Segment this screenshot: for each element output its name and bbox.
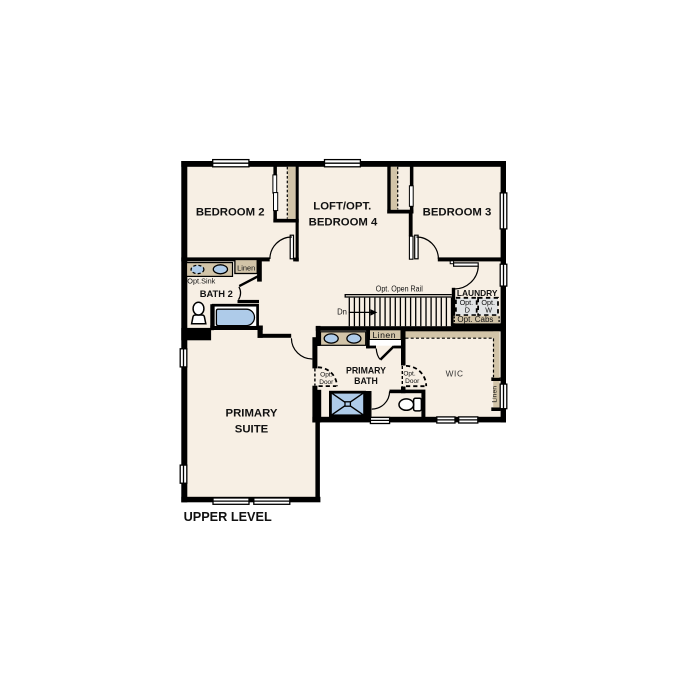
svg-text:LAUNDRY: LAUNDRY — [457, 288, 498, 298]
svg-text:UPPER LEVEL: UPPER LEVEL — [184, 510, 272, 524]
svg-text:PRIMARY: PRIMARY — [226, 407, 278, 419]
svg-text:Linen: Linen — [491, 386, 498, 403]
svg-text:Opt. Cabs: Opt. Cabs — [457, 315, 493, 324]
svg-text:D: D — [465, 306, 470, 315]
svg-text:BEDROOM 3: BEDROOM 3 — [423, 207, 492, 219]
svg-text:Linen: Linen — [372, 330, 396, 340]
svg-text:LOFT/OPT.: LOFT/OPT. — [313, 201, 371, 213]
svg-text:Opt.Sink: Opt.Sink — [187, 277, 215, 286]
svg-text:Dn: Dn — [337, 306, 347, 316]
svg-text:BATH 2: BATH 2 — [200, 288, 233, 299]
svg-text:SUITE: SUITE — [235, 423, 269, 435]
svg-text:Opt. Open Rail: Opt. Open Rail — [376, 285, 423, 294]
svg-text:BATH: BATH — [354, 376, 378, 386]
svg-text:WIC: WIC — [446, 368, 464, 378]
svg-text:Opt.: Opt. — [403, 370, 415, 377]
svg-text:Opt.: Opt. — [320, 371, 332, 378]
svg-text:W: W — [485, 306, 492, 315]
svg-text:BEDROOM 4: BEDROOM 4 — [309, 217, 378, 229]
svg-text:PRIMARY: PRIMARY — [346, 366, 386, 376]
svg-text:BEDROOM 2: BEDROOM 2 — [196, 207, 265, 219]
svg-text:Linen: Linen — [237, 263, 255, 272]
svg-text:Door: Door — [405, 378, 420, 385]
svg-text:Door: Door — [319, 379, 334, 386]
